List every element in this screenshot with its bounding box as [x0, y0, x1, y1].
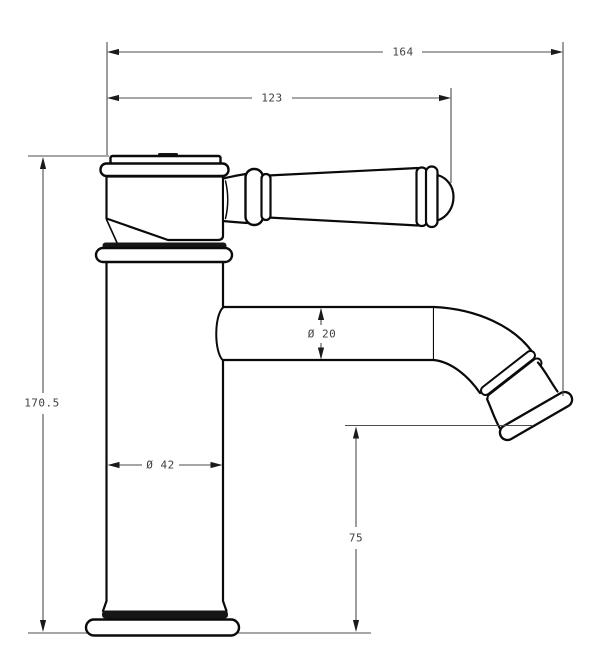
dimension-label-123: 123: [261, 92, 282, 105]
arrowhead-right: [439, 95, 451, 101]
base-flange: [86, 620, 239, 636]
dimension-spout-height: 75: [345, 426, 532, 633]
dimension-spout-diameter: Ø 20: [308, 308, 337, 360]
base-flare-sides: [103, 601, 227, 611]
arrowhead-up: [40, 157, 46, 169]
collar-ring-large: [246, 169, 264, 225]
spout: [223, 307, 575, 443]
dimension-overall-height: 170.5: [24, 156, 109, 632]
dimension-label-20: Ø 20: [308, 328, 337, 341]
arrowhead-right: [211, 462, 223, 468]
dimension-label-42: Ø 42: [146, 459, 175, 472]
arrowhead-up: [353, 427, 359, 439]
arrowhead-right: [551, 49, 563, 55]
handle-assembly: [101, 153, 454, 246]
base-band-dark: [102, 611, 228, 619]
base: [86, 601, 239, 636]
dimension-label-75: 75: [349, 532, 363, 545]
faucet-outline: [86, 153, 575, 636]
arrowhead-down: [40, 620, 46, 632]
arrowhead-left: [107, 95, 119, 101]
dimension-label-170-5: 170.5: [24, 397, 60, 410]
arrowhead-left: [107, 49, 119, 55]
top-flange: [101, 164, 229, 177]
technical-drawing: 164 123 170.5 Ø 20: [0, 0, 600, 664]
arrowhead-left: [108, 462, 120, 468]
head-body: [107, 177, 224, 241]
spout-root-fillet: [216, 308, 223, 361]
dimension-label-164: 164: [392, 46, 413, 59]
arrowhead-down: [318, 348, 324, 360]
dimension-body-diameter: Ø 42: [108, 459, 223, 472]
head-chamfer-line: [107, 220, 119, 247]
drawing-canvas: 164 123 170.5 Ø 20: [0, 0, 600, 664]
arrowhead-up: [318, 308, 324, 320]
arrowhead-down: [353, 620, 359, 632]
neck-flange: [96, 248, 232, 262]
lever-handle: [268, 168, 418, 226]
collar-ring-small: [262, 174, 271, 220]
body-column: [96, 243, 232, 602]
handle-end-ring-2: [426, 167, 438, 228]
